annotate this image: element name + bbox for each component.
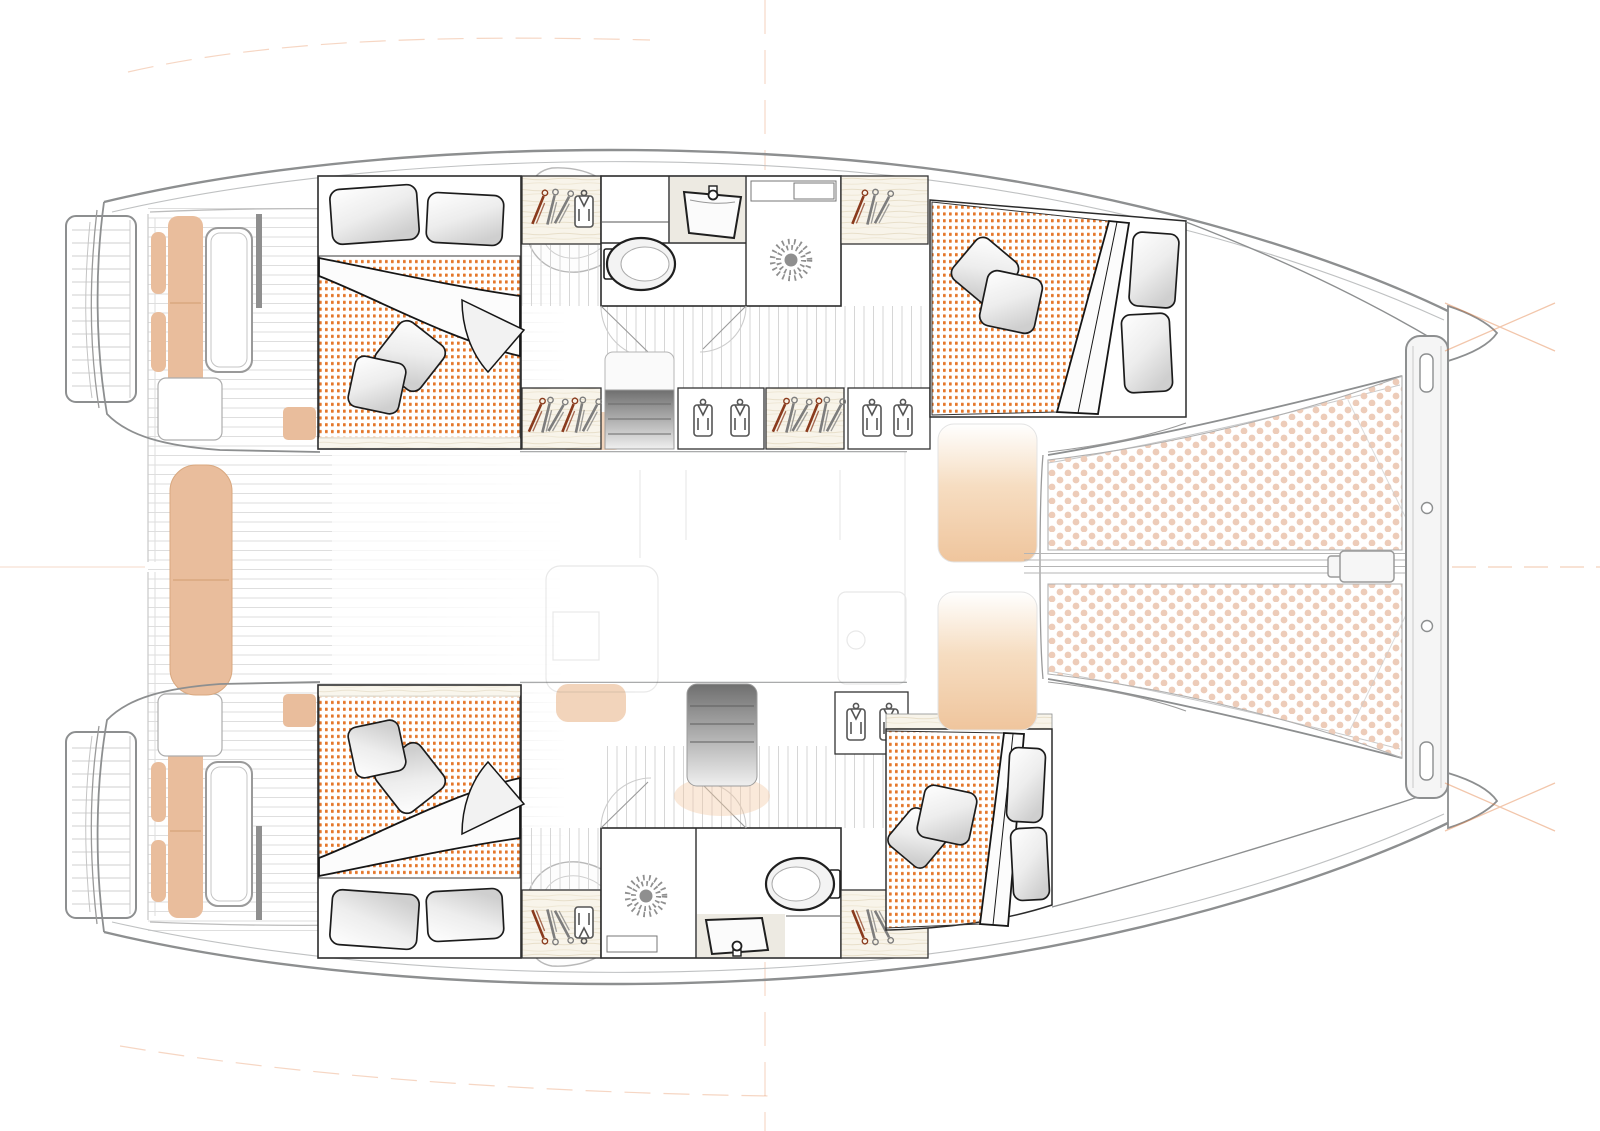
- bed-pillow: [329, 184, 420, 245]
- cockpit-back-cushion: [151, 232, 166, 294]
- bed-pillow: [1121, 313, 1173, 393]
- stairs-starboard: [687, 684, 757, 786]
- stairs-port: [605, 352, 674, 449]
- wardrobe-mid: [841, 176, 928, 244]
- throw-pillow: [346, 354, 407, 415]
- bed-pillow: [1010, 827, 1050, 901]
- faucet-icon: [709, 191, 718, 200]
- lounge-pad: [938, 592, 1037, 730]
- lounge-pad: [938, 424, 1037, 562]
- cockpit-back-cushion: [151, 312, 166, 372]
- aft-cabin: [318, 176, 524, 449]
- cockpit-table: [206, 228, 252, 372]
- throw-pillow: [978, 269, 1044, 335]
- sheer-reference-bottom: [120, 1046, 770, 1096]
- faucet-icon: [733, 942, 742, 951]
- beam-fitting: [1422, 503, 1433, 514]
- bed-pillow: [1128, 231, 1179, 308]
- shirt-icon: [575, 190, 593, 227]
- throw-pillow: [915, 783, 978, 846]
- foredeck-chine-starboard: [1052, 793, 1430, 907]
- locker-cabinet: [848, 388, 930, 449]
- bed-pillow: [1006, 747, 1046, 823]
- deck-plan-page: [0, 0, 1600, 1131]
- cockpit-stowage-box: [158, 378, 222, 440]
- forward-beam: [1406, 336, 1448, 798]
- aft-cabin-shelf: [319, 437, 520, 448]
- bow-crosshairs: [1445, 303, 1600, 831]
- bed-pillow: [426, 192, 505, 246]
- davit-post: [256, 214, 262, 308]
- helm-seat-cushion: [283, 407, 316, 440]
- corridor-floor: [522, 245, 601, 306]
- deck-plan-svg: [0, 0, 1600, 1131]
- beam-fitting: [1422, 621, 1433, 632]
- cabin-forward-port: [930, 200, 1186, 417]
- locker-cabinet: [678, 388, 764, 449]
- beam-slot: [1420, 742, 1433, 780]
- wardrobe-aft: [522, 176, 601, 244]
- beam-slot: [1420, 354, 1433, 392]
- sheer-reference-top: [128, 38, 650, 72]
- cabin-forward-starboard: [884, 714, 1052, 930]
- bow-tip: [1448, 306, 1497, 361]
